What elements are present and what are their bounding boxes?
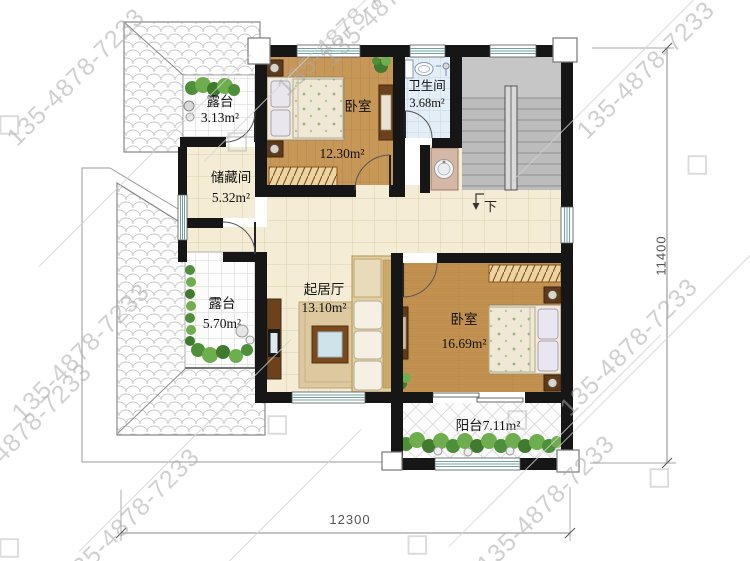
rock-icon — [246, 336, 254, 344]
room-area-bedroom-main: 16.69m² — [420, 337, 508, 351]
room-label-balcony: 阳台7.11m² — [428, 419, 548, 433]
room-area-bedroom-top: 12.30m² — [300, 147, 384, 161]
sliding-door — [433, 393, 523, 402]
room-area-bathroom: 3.68m² — [398, 97, 456, 110]
floor-plan-canvas: 露台 3.13m² 卧室 12.30m² 卫生间 3.68m² 储藏间 5.32… — [0, 0, 750, 561]
room-label-bathroom: 卫生间 — [398, 80, 456, 93]
room-label-terrace-top: 露台 — [185, 95, 255, 109]
window — [297, 45, 360, 57]
stairs-direction-label: 下 — [484, 196, 497, 215]
window — [435, 458, 520, 470]
lamp-icon — [548, 379, 557, 388]
room-area-living: 13.10m² — [282, 301, 366, 315]
window — [410, 45, 445, 57]
lamp-icon — [270, 64, 279, 73]
rock-icon — [506, 447, 514, 455]
room-label-terrace-left: 露台 — [188, 297, 256, 311]
window — [490, 45, 536, 57]
lamp-icon — [270, 145, 279, 154]
pillow — [271, 81, 290, 107]
toilet-icon — [405, 60, 413, 78]
room-label-storage: 储藏间 — [192, 171, 270, 185]
room-area-terrace-top: 3.13m² — [185, 111, 255, 125]
window — [292, 392, 365, 403]
faucet-icon — [443, 63, 449, 69]
room-area-terrace-left: 5.70m² — [188, 317, 256, 331]
pillow — [271, 110, 290, 136]
rock-icon — [464, 448, 472, 456]
dimension-bottom: 12300 — [317, 512, 383, 527]
room-label-bedroom-main: 卧室 — [436, 313, 492, 327]
washbasin — [431, 148, 458, 190]
room-area-storage: 5.32m² — [192, 191, 270, 205]
stairs — [462, 57, 561, 190]
rock-icon — [434, 447, 442, 455]
window — [561, 207, 573, 243]
floor-plan-drawing — [0, 0, 750, 561]
lamp-icon — [548, 291, 557, 300]
dimension-right: 11400 — [654, 223, 669, 289]
window — [178, 195, 187, 240]
room-label-living: 起居厅 — [294, 283, 354, 297]
pillow — [538, 309, 558, 339]
pillow — [538, 341, 558, 371]
room-label-bedroom-top: 卧室 — [318, 100, 398, 114]
